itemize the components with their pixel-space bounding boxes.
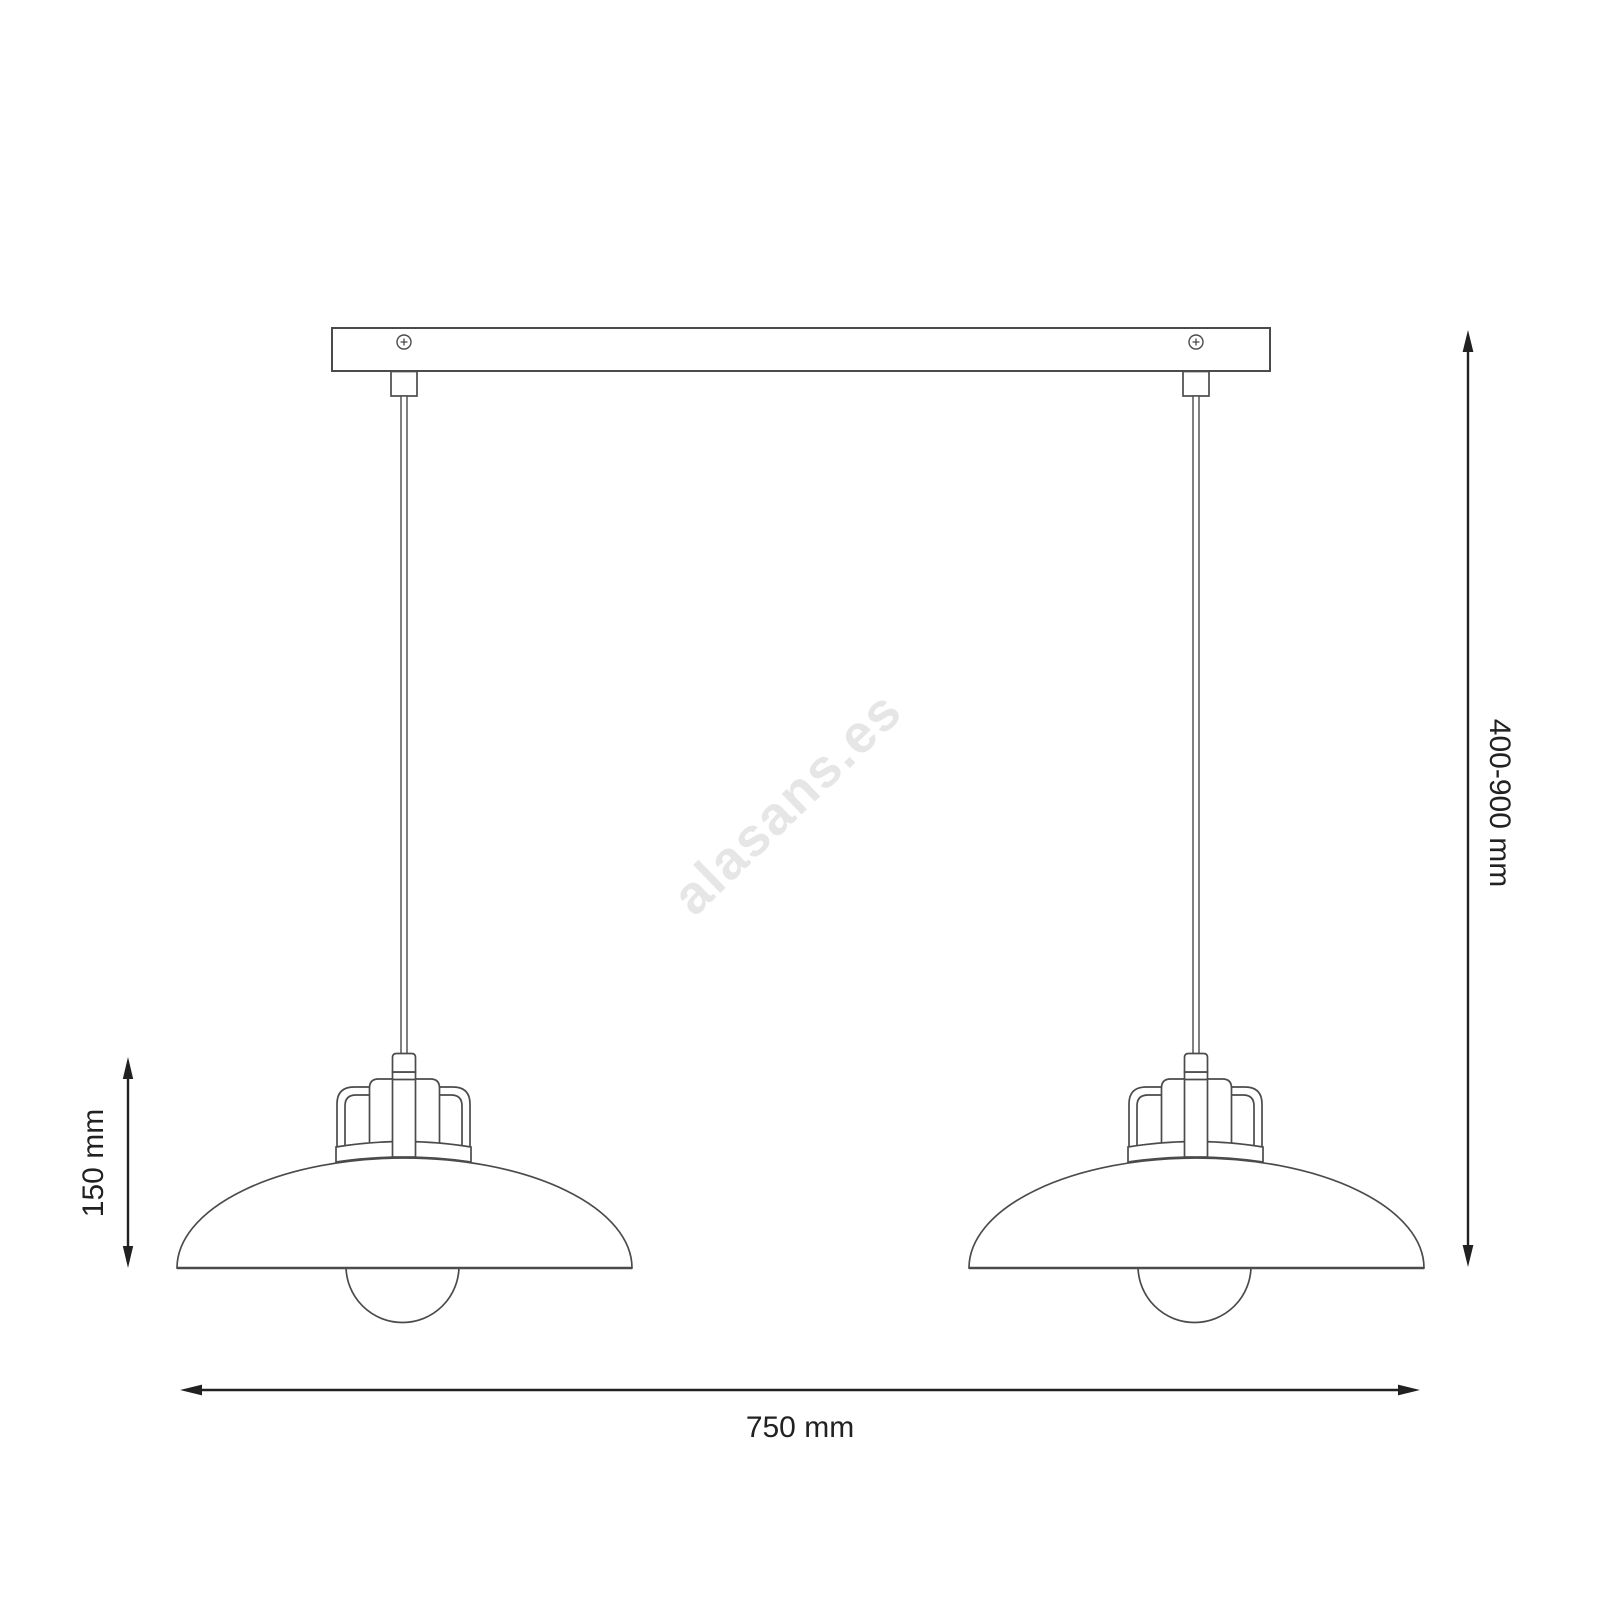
pendant-left (177, 335, 632, 1323)
ceiling-bar (332, 328, 1270, 371)
dimension-shade-height-label: 150 mm (77, 1109, 110, 1217)
pendant-lamp-dimension-diagram: 400-900 mm 150 mm 750 mm alasans.es (0, 0, 1600, 1600)
watermark: alasans.es (661, 680, 914, 927)
dimension-shade-height-arrow (123, 1057, 133, 1268)
dimension-width-arrow (180, 1385, 1420, 1396)
dimension-drop-height-label: 400-900 mm (1483, 719, 1516, 887)
dimension-width-label: 750 mm (746, 1411, 854, 1444)
diagram-canvas: 400-900 mm 150 mm 750 mm alasans.es (0, 0, 1600, 1600)
dimension-drop-height-arrow (1463, 330, 1474, 1267)
pendant-right (969, 335, 1424, 1323)
